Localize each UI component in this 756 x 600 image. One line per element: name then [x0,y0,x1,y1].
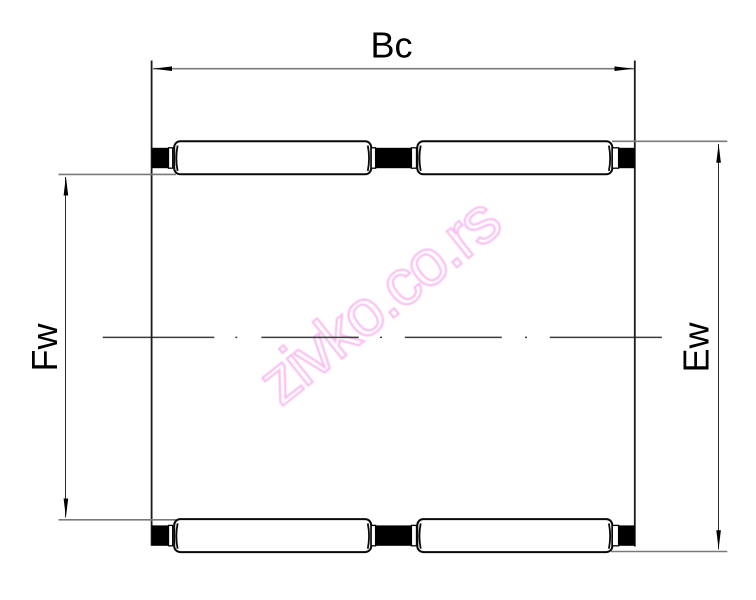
svg-text:Ew: Ew [676,321,717,372]
svg-text:Fw: Fw [24,323,65,372]
svg-text:Bc: Bc [370,25,412,66]
